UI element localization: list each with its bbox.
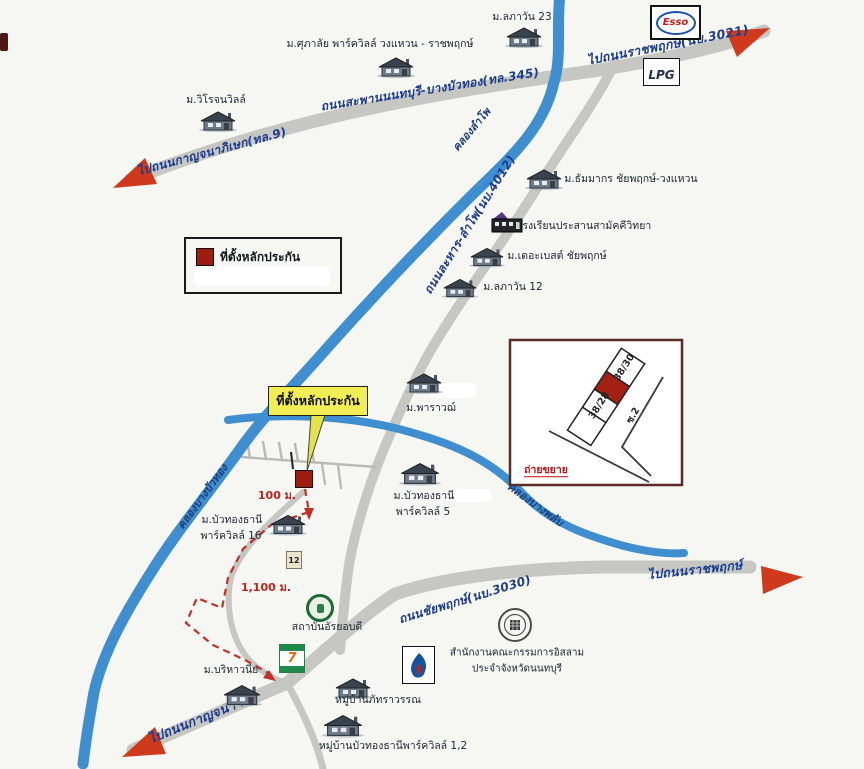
ptt-station-icon <box>402 646 435 684</box>
arrow-east-icon <box>761 566 803 594</box>
distance-1100m: 1,100 ม. <box>241 582 291 594</box>
islamic-office-seal-icon <box>496 606 534 644</box>
village-label: ม.พาราวฌ์ <box>406 403 455 415</box>
legend-box: ที่ตั้งหลักประกัน <box>184 237 342 294</box>
village-label: ม.ลภาวัน 12 <box>483 282 542 294</box>
school-label: โรงเรียนประสานสามัคคีวิทยา <box>517 221 652 233</box>
seven-eleven-7: 7 <box>280 651 304 666</box>
institute-label: สถาบันอัรยอบดี <box>292 622 362 634</box>
village-house-icon <box>221 683 263 707</box>
inset-caption-text: ถ่ายขยาย <box>524 464 568 477</box>
village-house-icon <box>198 110 238 132</box>
village-house-icon <box>468 246 506 268</box>
seven-eleven-icon: 7 <box>279 644 305 673</box>
scan-artifact <box>0 33 8 51</box>
collateral-pole <box>291 452 293 469</box>
collateral-callout: ที่ตั้งหลักประกัน <box>268 386 368 416</box>
esso-station-icon: Esso <box>650 5 701 40</box>
village-label: ม.วิโรจนวิลล์ <box>186 95 246 107</box>
ptt-flame-icon <box>408 651 430 679</box>
village-label: ม.บริหาวนีย <box>204 665 259 677</box>
village-label: พาร์ควิลล์ 16 <box>201 531 262 543</box>
inset-caption: ถ่ายขยาย <box>524 465 568 477</box>
village-label: หมู่บ้านบัวทองธานีพาร์ควิลล์ 1,2 <box>319 741 467 753</box>
legend-collateral-label: ที่ตั้งหลักประกัน <box>220 248 300 267</box>
village-house-icon <box>321 713 365 738</box>
distance-100m: 100 ม. <box>258 490 296 502</box>
marker-12-icon: 12 <box>286 551 302 569</box>
village-label: ม.บัวทองธานี <box>394 491 455 503</box>
road-side-south <box>287 683 323 769</box>
esso-logo-text: Esso <box>656 11 696 35</box>
village-house-icon <box>504 26 544 48</box>
village-house-icon <box>268 513 308 536</box>
legend-erased-area <box>194 267 330 286</box>
legend-collateral-swatch <box>196 248 214 266</box>
institute-logo-core <box>317 604 324 613</box>
village-house-icon <box>404 372 444 394</box>
erased-area-2 <box>452 489 492 502</box>
village-house-icon <box>441 277 479 299</box>
village-label: พาร์ควิลล์ 5 <box>396 507 450 519</box>
village-label: ม.ศุภาลัย พาร์ควิลล์ วงแหวน - ราชพฤกษ์ <box>287 39 474 51</box>
lpg-station-icon: LPG <box>643 58 680 86</box>
village-label: ม.ลภาวัน 23 <box>492 12 551 24</box>
village-house-icon <box>398 461 442 486</box>
institute-logo-icon <box>306 594 334 622</box>
islamic-office-label-line1: สำนักงานคณะกรรมการอิสลาม <box>450 648 584 659</box>
collateral-location-map: ไปถนนกาญจนาภิเษก(ทล.9) ถนนสะพานนนทบุรี-บ… <box>0 0 864 769</box>
village-label: ม.เดอะเบสต์ ชัยพฤกษ์ <box>507 251 606 263</box>
village-label: ม.ธัมมากร ชัยพฤกษ์-วงแหวน <box>564 174 697 186</box>
village-label: หมู่บ้านภัทราวรรณ <box>335 695 421 707</box>
village-label: ม.บัวทองธานี <box>202 515 263 527</box>
collateral-marker <box>295 470 313 488</box>
islamic-office-label-line2: ประจำจังหวัดนนทบุรี <box>472 664 562 675</box>
village-house-icon <box>524 168 564 190</box>
seven-eleven-stripe <box>280 666 304 672</box>
village-house-icon <box>376 56 416 78</box>
